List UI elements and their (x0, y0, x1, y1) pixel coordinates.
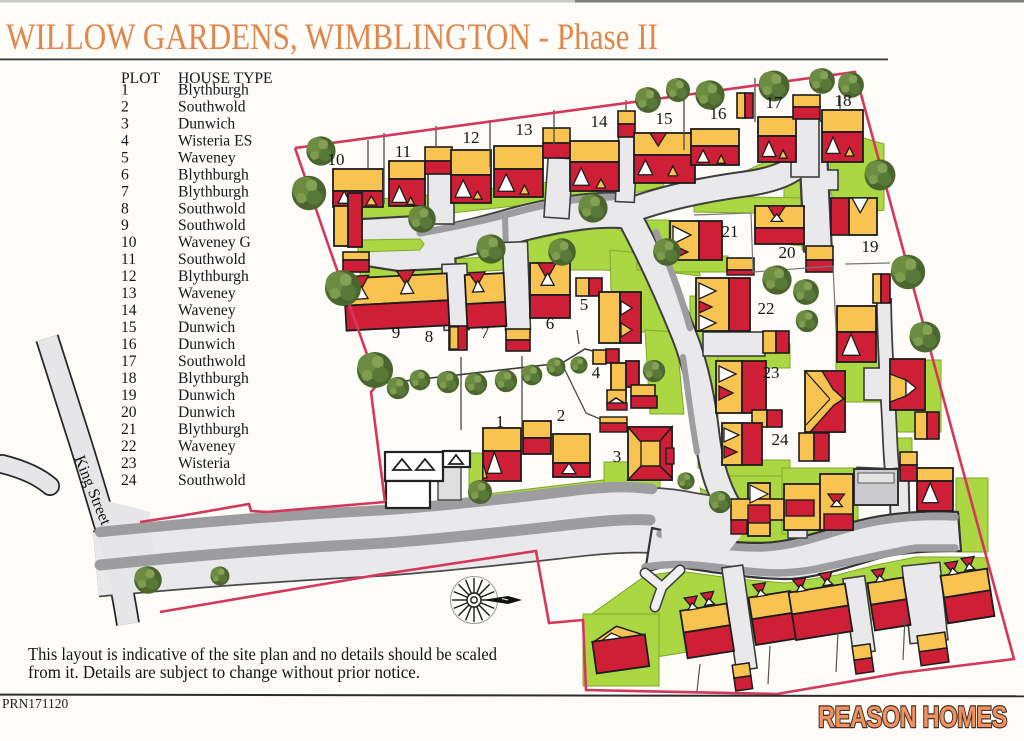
svg-text:from it. Details are subject t: from it. Details are subject to change w… (28, 662, 420, 682)
svg-text:13: 13 (121, 285, 137, 302)
svg-text:6: 6 (121, 166, 129, 183)
svg-text:4: 4 (592, 363, 601, 382)
svg-text:3: 3 (121, 115, 129, 132)
svg-text:9: 9 (392, 323, 401, 342)
svg-text:1: 1 (496, 412, 505, 431)
svg-text:1: 1 (121, 81, 129, 98)
svg-text:PRN171120: PRN171120 (2, 696, 69, 711)
svg-text:17: 17 (766, 93, 784, 112)
svg-text:16: 16 (710, 104, 727, 123)
svg-text:2: 2 (557, 406, 566, 425)
svg-text:Waveney: Waveney (178, 438, 236, 455)
svg-text:REASON HOMES: REASON HOMES (818, 701, 1007, 734)
svg-text:Blythburgh: Blythburgh (178, 183, 249, 200)
svg-text:Waveney: Waveney (178, 302, 236, 319)
svg-text:WILLOW GARDENS, WIMBLINGTON -: WILLOW GARDENS, WIMBLINGTON - Phase II (6, 17, 658, 58)
svg-text:8: 8 (425, 327, 434, 346)
svg-text:10: 10 (121, 234, 137, 251)
svg-text:4: 4 (121, 132, 129, 149)
svg-text:14: 14 (591, 112, 609, 131)
svg-text:13: 13 (516, 120, 533, 139)
svg-text:2: 2 (121, 98, 129, 115)
svg-text:14: 14 (121, 302, 137, 319)
svg-text:20: 20 (779, 243, 796, 262)
svg-text:8: 8 (121, 200, 129, 217)
svg-text:20: 20 (121, 404, 137, 421)
svg-text:12: 12 (121, 268, 137, 285)
svg-text:Waveney: Waveney (178, 149, 236, 166)
svg-text:Dunwich: Dunwich (178, 336, 235, 353)
svg-text:22: 22 (758, 299, 775, 318)
svg-text:This layout is indicative of t: This layout is indicative of the site pl… (28, 644, 497, 664)
svg-text:21: 21 (121, 421, 137, 438)
svg-text:Wisteria: Wisteria (178, 455, 230, 472)
svg-text:Waveney: Waveney (178, 285, 236, 302)
svg-text:21: 21 (722, 222, 739, 241)
svg-text:7: 7 (121, 183, 129, 200)
svg-text:10: 10 (328, 150, 345, 169)
svg-text:22: 22 (121, 438, 137, 455)
svg-text:Waveney G: Waveney G (178, 234, 251, 251)
svg-text:24: 24 (121, 472, 137, 489)
svg-text:Southwold: Southwold (178, 98, 246, 115)
svg-text:24: 24 (772, 430, 790, 449)
svg-text:6: 6 (546, 314, 555, 333)
svg-text:Blythburgh: Blythburgh (178, 268, 249, 285)
svg-text:Blythburgh: Blythburgh (178, 421, 249, 438)
svg-text:15: 15 (121, 319, 137, 336)
svg-text:16: 16 (121, 336, 137, 353)
svg-text:Dunwich: Dunwich (178, 387, 235, 404)
svg-text:17: 17 (121, 353, 137, 370)
svg-text:19: 19 (862, 237, 879, 256)
svg-text:Dunwich: Dunwich (178, 404, 235, 421)
svg-text:5: 5 (121, 149, 129, 166)
svg-text:18: 18 (121, 370, 137, 387)
svg-text:15: 15 (656, 109, 673, 128)
svg-text:19: 19 (121, 387, 137, 404)
svg-text:Dunwich: Dunwich (178, 319, 235, 336)
svg-text:23: 23 (121, 455, 137, 472)
svg-text:7: 7 (481, 323, 490, 342)
svg-text:Blythburgh: Blythburgh (178, 370, 249, 387)
svg-text:3: 3 (613, 447, 622, 466)
svg-text:11: 11 (395, 142, 411, 161)
svg-text:Blythburgh: Blythburgh (178, 81, 249, 98)
svg-text:Blythburgh: Blythburgh (178, 166, 249, 183)
svg-text:11: 11 (121, 251, 136, 268)
svg-text:12: 12 (463, 128, 480, 147)
svg-text:9: 9 (121, 217, 129, 234)
svg-text:Dunwich: Dunwich (178, 115, 235, 132)
svg-text:5: 5 (580, 295, 589, 314)
svg-text:Southwold: Southwold (178, 353, 246, 370)
svg-text:Southwold: Southwold (178, 251, 246, 268)
svg-text:18: 18 (835, 91, 852, 110)
svg-text:Southwold: Southwold (178, 217, 246, 234)
svg-text:Southwold: Southwold (178, 472, 246, 489)
svg-text:Wisteria ES: Wisteria ES (178, 132, 252, 149)
svg-text:23: 23 (763, 363, 780, 382)
svg-text:Southwold: Southwold (178, 200, 246, 217)
